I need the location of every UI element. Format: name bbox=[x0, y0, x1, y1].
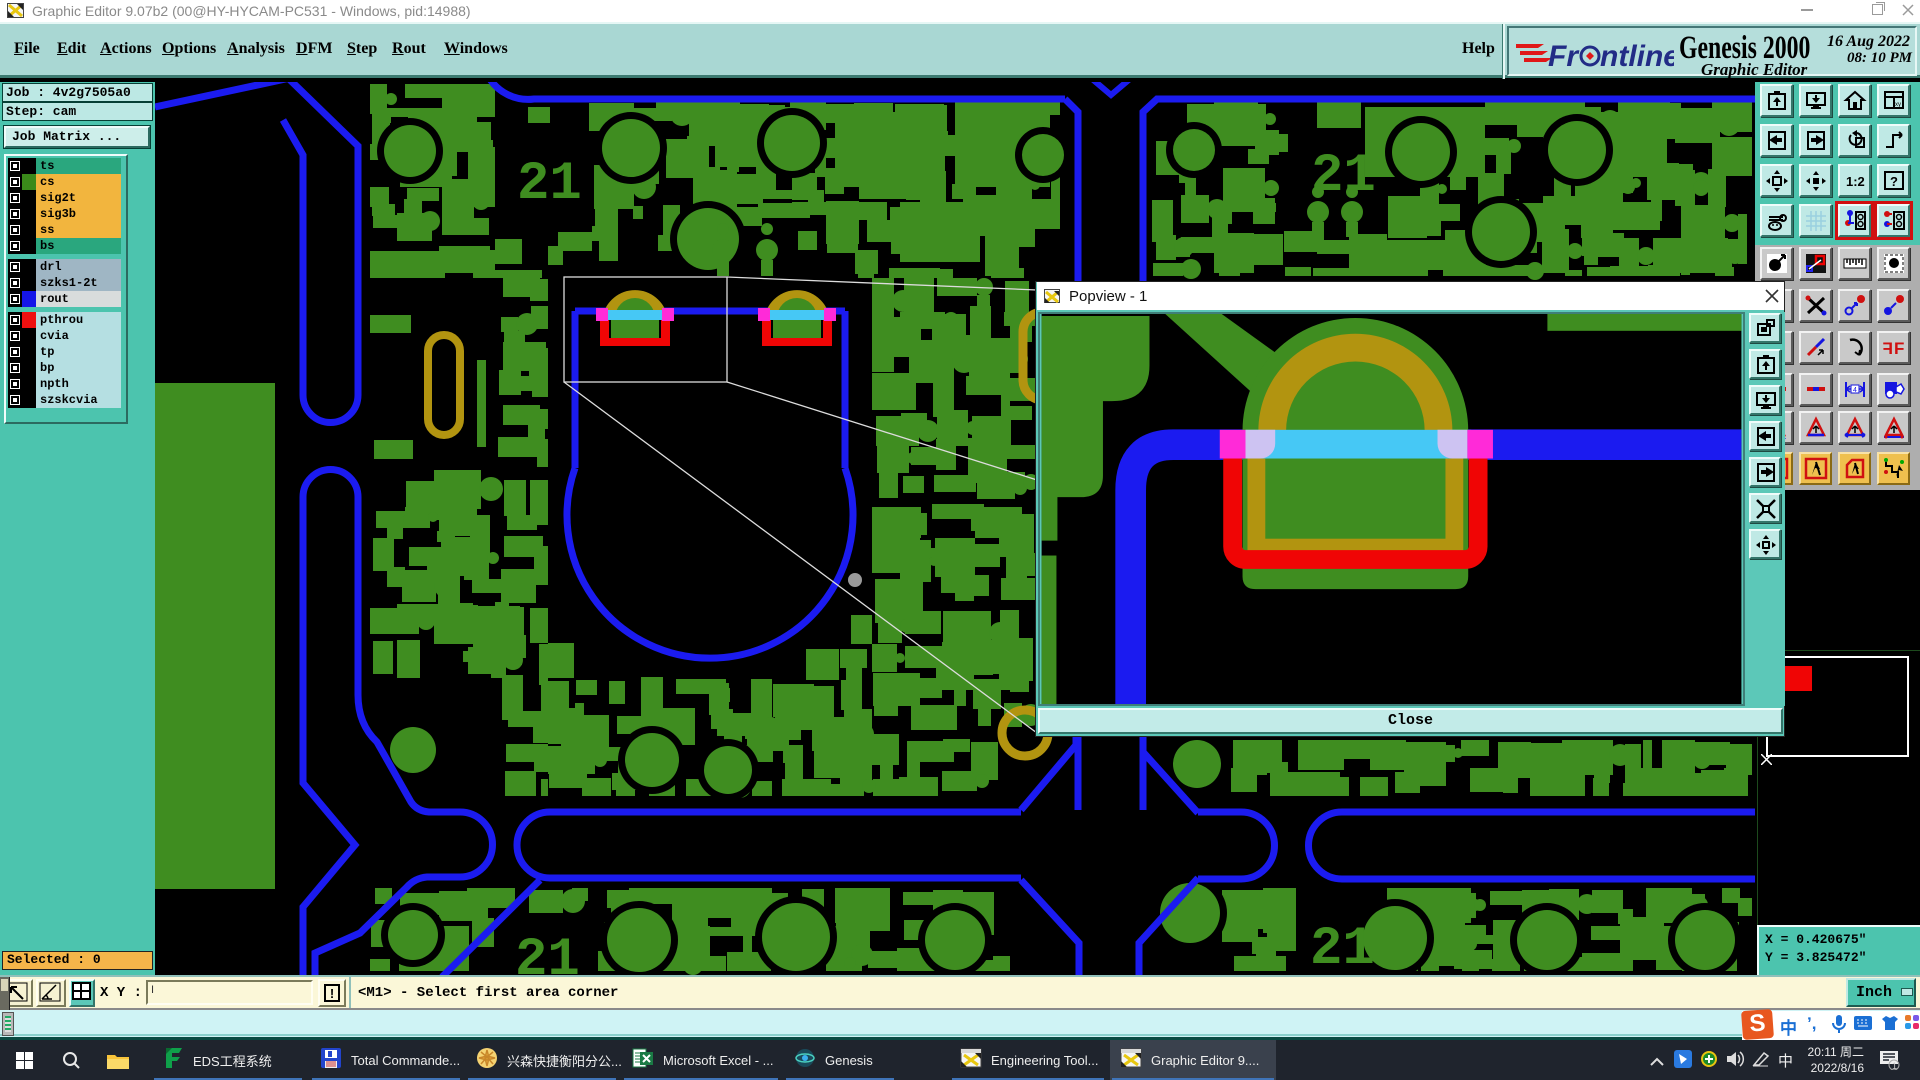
svg-text:F: F bbox=[1894, 339, 1904, 358]
svg-text:xy: xy bbox=[1895, 102, 1901, 108]
svg-text:Fr: Fr bbox=[1548, 40, 1580, 73]
svg-text:1: 1 bbox=[1892, 1061, 1897, 1070]
svg-text:?: ? bbox=[1890, 174, 1898, 189]
svg-text:F: F bbox=[1882, 339, 1892, 358]
svg-text:21: 21 bbox=[1310, 919, 1375, 975]
svg-text:21: 21 bbox=[515, 930, 580, 975]
svg-text:1:2: 1:2 bbox=[1846, 174, 1865, 189]
svg-text:4: 4 bbox=[1853, 387, 1857, 394]
svg-text:21: 21 bbox=[1311, 146, 1376, 207]
svg-text:21: 21 bbox=[517, 154, 582, 215]
svg-text:ntline: ntline bbox=[1600, 40, 1674, 73]
